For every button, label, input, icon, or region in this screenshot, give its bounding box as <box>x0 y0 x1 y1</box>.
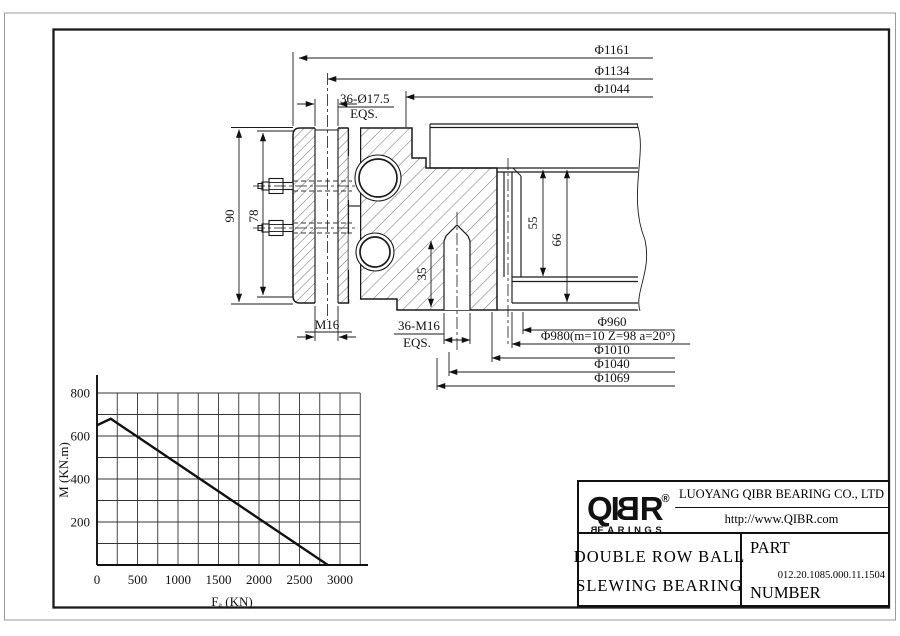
dim-label: M16 <box>315 317 340 332</box>
svg-text:800: 800 <box>71 386 91 401</box>
dim-label: EQS. <box>350 106 378 121</box>
dim-label: Φ960 <box>597 314 626 329</box>
title-block: QIBR® BEARINGS LUOYANG QIBR BEARING CO.,… <box>577 480 890 607</box>
svg-text:2000: 2000 <box>246 572 272 587</box>
dim-label: Φ1134 <box>594 63 630 78</box>
company-website[interactable]: http://www.QIBR.com <box>675 508 888 533</box>
product-name: DOUBLE ROW BALL SLEWING BEARING <box>579 534 742 607</box>
support-flange-bottom <box>497 277 638 310</box>
svg-text:500: 500 <box>128 572 148 587</box>
part-number-cell: PART 012.20.1085.000.11.1504 NUMBER <box>742 534 888 607</box>
dim-label: 66 <box>549 233 564 247</box>
dim-label: Φ1040 <box>594 356 630 371</box>
dim-label: Φ980(m=10 Z=98 a=20°) <box>541 328 675 343</box>
company-logo: QIBR® BEARINGS <box>579 482 675 532</box>
dim-label: Φ1010 <box>594 342 630 357</box>
qibr-logo-icon: QIBR® <box>587 484 675 524</box>
svg-text:1500: 1500 <box>206 572 232 587</box>
part-label-top: PART <box>750 538 888 558</box>
svg-text:600: 600 <box>71 429 91 444</box>
bearing-cross-section <box>253 73 647 352</box>
ball-bottom <box>360 237 390 267</box>
svg-text:Fₐ (KN): Fₐ (KN) <box>211 594 252 609</box>
registered-mark: ® <box>662 493 670 505</box>
svg-text:400: 400 <box>71 472 91 487</box>
ball-top <box>359 159 397 197</box>
break-line <box>637 124 647 311</box>
dim-label: 35 <box>414 268 429 281</box>
company-info: LUOYANG QIBR BEARING CO., LTD http://www… <box>675 482 888 532</box>
svg-text:2500: 2500 <box>287 572 313 587</box>
title-block-header: QIBR® BEARINGS LUOYANG QIBR BEARING CO.,… <box>579 482 888 534</box>
dim-label: Φ1044 <box>594 81 630 96</box>
svg-text:M (KN.m): M (KN.m) <box>56 442 71 498</box>
bolt-hole <box>315 127 338 304</box>
dim-label: EQS. <box>403 335 431 350</box>
part-number: 012.20.1085.000.11.1504 <box>778 570 885 581</box>
load-capacity-chart: 050010001500200025003000200400600800Fₐ (… <box>56 375 368 609</box>
dim-label: Φ1161 <box>594 42 629 57</box>
part-label-bottom: NUMBER <box>750 583 888 603</box>
dim-label: 36-Ø17.5 <box>340 91 389 106</box>
dim-label: 78 <box>246 210 261 223</box>
company-name: LUOYANG QIBR BEARING CO., LTD <box>675 482 888 508</box>
support-plate-top <box>430 124 638 172</box>
dim-label: 36-M16 <box>398 318 440 333</box>
svg-text:3000: 3000 <box>327 572 353 587</box>
dim-label: 55 <box>525 217 540 230</box>
ring-gap <box>349 127 361 299</box>
svg-text:0: 0 <box>94 572 101 587</box>
svg-text:1000: 1000 <box>165 572 191 587</box>
title-block-body: DOUBLE ROW BALL SLEWING BEARING PART 012… <box>579 534 888 607</box>
dim-label: Φ1069 <box>594 370 630 385</box>
svg-text:200: 200 <box>71 515 91 530</box>
dim-label: 90 <box>222 210 237 223</box>
drawing-sheet: Φ1161 Φ1134 Φ1044 36-Ø17.5 EQS. 90 78 M1… <box>0 0 900 636</box>
